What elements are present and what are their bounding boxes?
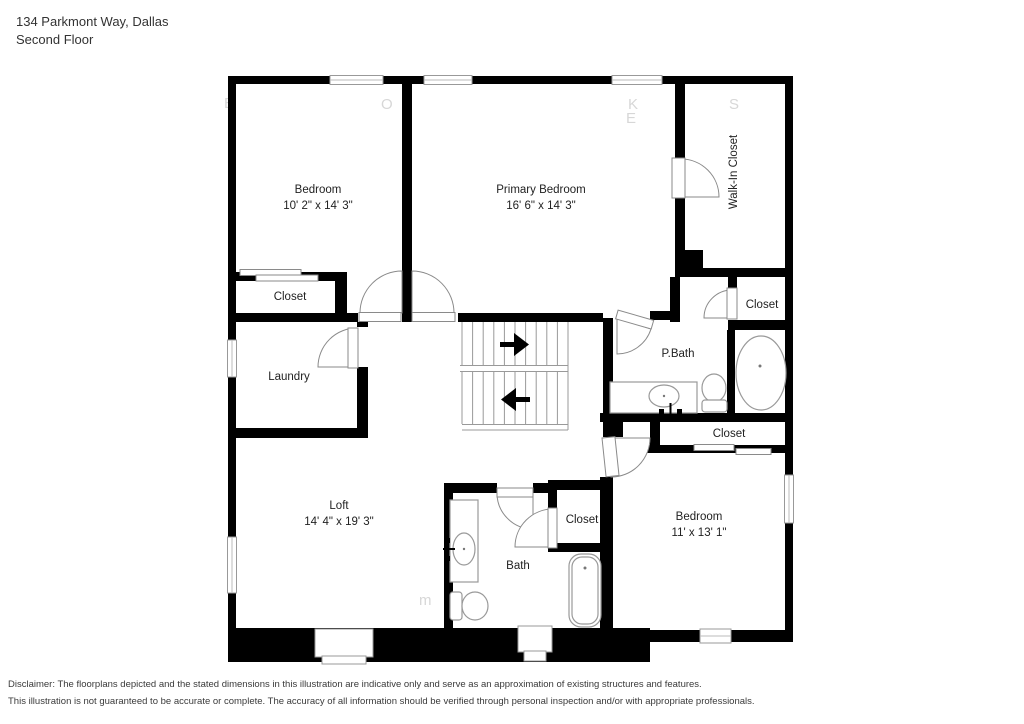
slider-closet-tl-b: [256, 275, 318, 281]
door-arc-primary: [412, 271, 454, 313]
floorplan-drawing: [0, 0, 1024, 724]
room-dims: 14' 4" x 19' 3": [304, 514, 373, 530]
wall-walkin-block: [675, 250, 703, 277]
room-label-closet-tl: Closet: [274, 289, 307, 305]
wall-laundry-right-a: [357, 322, 368, 327]
room-label-bedroom1: Bedroom 10' 2" x 14' 3": [283, 182, 352, 214]
door-leaf-closet-bath: [548, 508, 557, 548]
slider-closet-b2-b: [736, 449, 771, 455]
wall-pbath-bottom: [600, 413, 793, 422]
room-dims: 16' 6" x 14' 3": [496, 198, 585, 214]
wall-bedroom2-left: [600, 477, 613, 660]
room-label-bedroom2: Bedroom 11' x 13' 1": [672, 509, 727, 541]
window-loft-bottom-step: [322, 656, 366, 664]
door-arc-walkin: [681, 159, 719, 197]
room-label-walkin: Walk-In Closet: [726, 135, 742, 209]
wall-walkin-left-b: [675, 197, 685, 250]
door-leaf-bedroom1: [359, 313, 401, 322]
door-leaf-closet-pb: [727, 288, 737, 319]
room-name: Bedroom: [672, 509, 727, 525]
window-loft-bottom: [315, 629, 373, 657]
wall-walkin-left-a: [675, 84, 685, 158]
pbath-bathtub-icon: [736, 336, 786, 410]
room-name: Loft: [304, 498, 373, 514]
door-leaf-primary: [412, 313, 455, 322]
door-leaf-walkin: [672, 158, 685, 198]
windows: [228, 76, 794, 665]
wall-laundry-right-b: [357, 367, 368, 432]
fixtures: [450, 336, 786, 627]
pbath-tub-drain: [759, 365, 762, 368]
window-mullions: [232, 80, 789, 636]
floorplan-page: 134 Parkmont Way, Dallas Second Floor E …: [0, 0, 1024, 724]
room-label-primary: Primary Bedroom 16' 6" x 14' 3": [496, 182, 585, 214]
room-name: Bedroom: [283, 182, 352, 198]
wall-closet-pb-bottom: [728, 320, 793, 330]
room-dims: 11' x 13' 1": [672, 525, 727, 541]
wall-exterior-top: [228, 76, 793, 84]
disclaimer-line-2: This illustration is not guaranteed to b…: [8, 696, 755, 707]
wall-tub-nook: [727, 330, 735, 415]
wall-bath-top-b: [533, 483, 548, 493]
wall-exterior-right: [785, 76, 793, 642]
window-bath-bottom: [518, 626, 552, 652]
slider-closet-b2-a: [694, 445, 734, 451]
room-label-bath: Bath: [506, 558, 530, 574]
room-label-laundry: Laundry: [268, 369, 310, 385]
pbath-toilet-tank-icon: [702, 400, 727, 412]
bath-toilet-tank-icon: [450, 592, 462, 620]
door-arc-bedroom1: [360, 271, 402, 313]
room-label-pbath: P.Bath: [661, 346, 694, 362]
wall-corner-chunk: [603, 413, 623, 437]
room-label-closet-pb: Closet: [746, 297, 779, 313]
bath-tub-drain: [584, 567, 587, 570]
pbath-faucet-icon: [659, 409, 664, 414]
window-bath-bottom-step: [524, 651, 546, 661]
room-label-loft: Loft 14' 4" x 19' 3": [304, 498, 373, 530]
wall-walkin-bottom: [703, 268, 793, 277]
bath-faucet-icon: [445, 538, 450, 543]
walls: [228, 76, 793, 662]
pbath-toilet-bowl-icon: [702, 374, 726, 402]
door-leaf-laundry: [348, 328, 358, 368]
room-label-closet-b2: Closet: [713, 426, 746, 442]
wall-bath-top-a: [444, 483, 497, 493]
wall-exterior-bottom-band: [228, 628, 650, 662]
wall-closet-bath-top: [548, 480, 603, 490]
bath-toilet-bowl-icon: [462, 592, 488, 620]
wall-closet-tl-right: [335, 272, 347, 322]
wall-bedroom-primary-divider: [402, 76, 412, 322]
room-label-closet-bath: Closet: [566, 512, 599, 528]
room-name: Primary Bedroom: [496, 182, 585, 198]
wall-laundry-bottom: [228, 428, 368, 438]
door-leaf-bath: [497, 488, 533, 497]
disclaimer-line-1: Disclaimer: The floorplans depicted and …: [8, 679, 702, 690]
wall-pbath-vestibule: [670, 277, 680, 322]
room-dims: 10' 2" x 14' 3": [283, 198, 352, 214]
wall-closet-bath-left: [548, 490, 557, 508]
wall-hall-b: [458, 313, 603, 322]
